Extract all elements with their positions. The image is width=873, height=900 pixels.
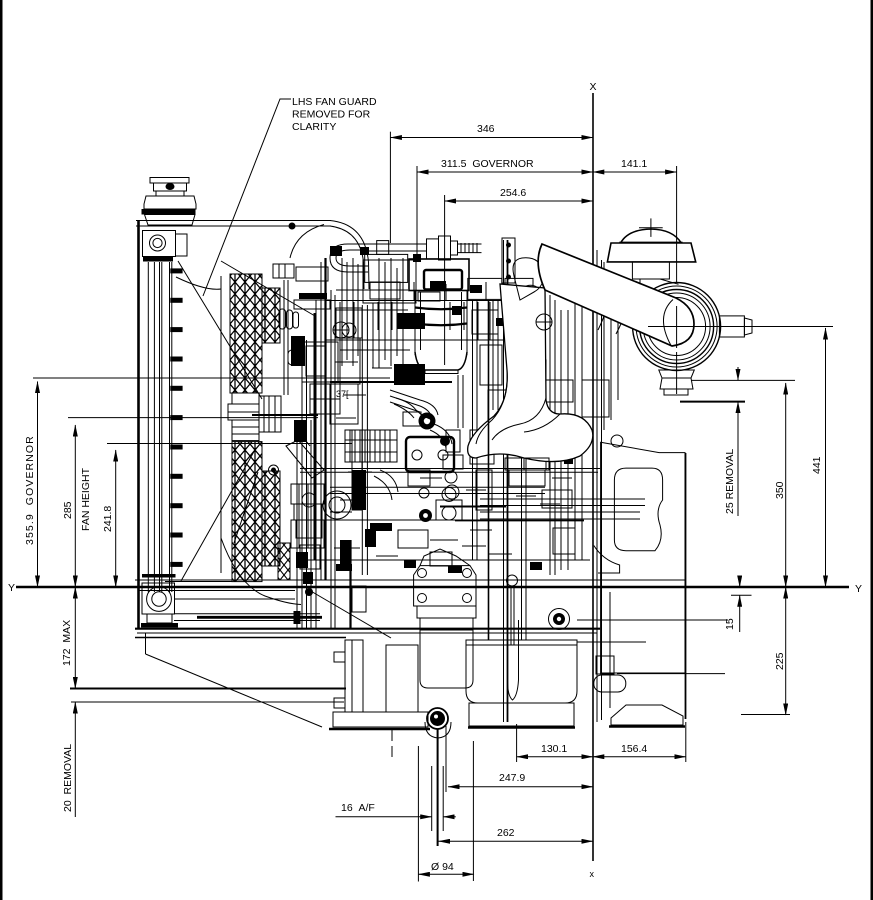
svg-text:355.9 GOVERNOR: 355.9 GOVERNOR (24, 435, 36, 545)
svg-text:Y: Y (8, 582, 15, 594)
svg-text:LHS FAN GUARD: LHS FAN GUARD (292, 96, 377, 108)
svg-text:262: 262 (497, 827, 515, 839)
svg-text:254.6: 254.6 (500, 187, 526, 199)
svg-text:141.1: 141.1 (621, 158, 647, 170)
svg-text:37[: 37[ (336, 389, 349, 399)
svg-text:311.5 GOVERNOR: 311.5 GOVERNOR (441, 158, 534, 170)
svg-text:20 REMOVAL: 20 REMOVAL (62, 744, 74, 812)
svg-text:441: 441 (811, 456, 823, 474)
svg-text:Y: Y (855, 583, 862, 595)
svg-text:16 A/F: 16 A/F (341, 802, 375, 814)
svg-text:130.1: 130.1 (541, 743, 567, 755)
svg-text:x: x (590, 869, 595, 879)
svg-text:346: 346 (477, 123, 495, 135)
svg-text:247.9: 247.9 (499, 772, 525, 784)
svg-text:172 MAX: 172 MAX (61, 620, 73, 666)
svg-text:241.8: 241.8 (102, 506, 114, 532)
svg-text:225: 225 (774, 652, 786, 670)
svg-text:X: X (590, 81, 597, 93)
svg-text:285: 285 (62, 501, 74, 519)
svg-text:350: 350 (774, 481, 786, 499)
svg-text:25 REMOVAL: 25 REMOVAL (724, 449, 736, 514)
svg-text:REMOVED FOR: REMOVED FOR (292, 109, 371, 121)
svg-text:CLARITY: CLARITY (292, 121, 336, 133)
svg-text:156.4: 156.4 (621, 743, 647, 755)
svg-text:Ø 94: Ø 94 (431, 861, 454, 873)
svg-text:FAN HEIGHT: FAN HEIGHT (80, 467, 92, 531)
